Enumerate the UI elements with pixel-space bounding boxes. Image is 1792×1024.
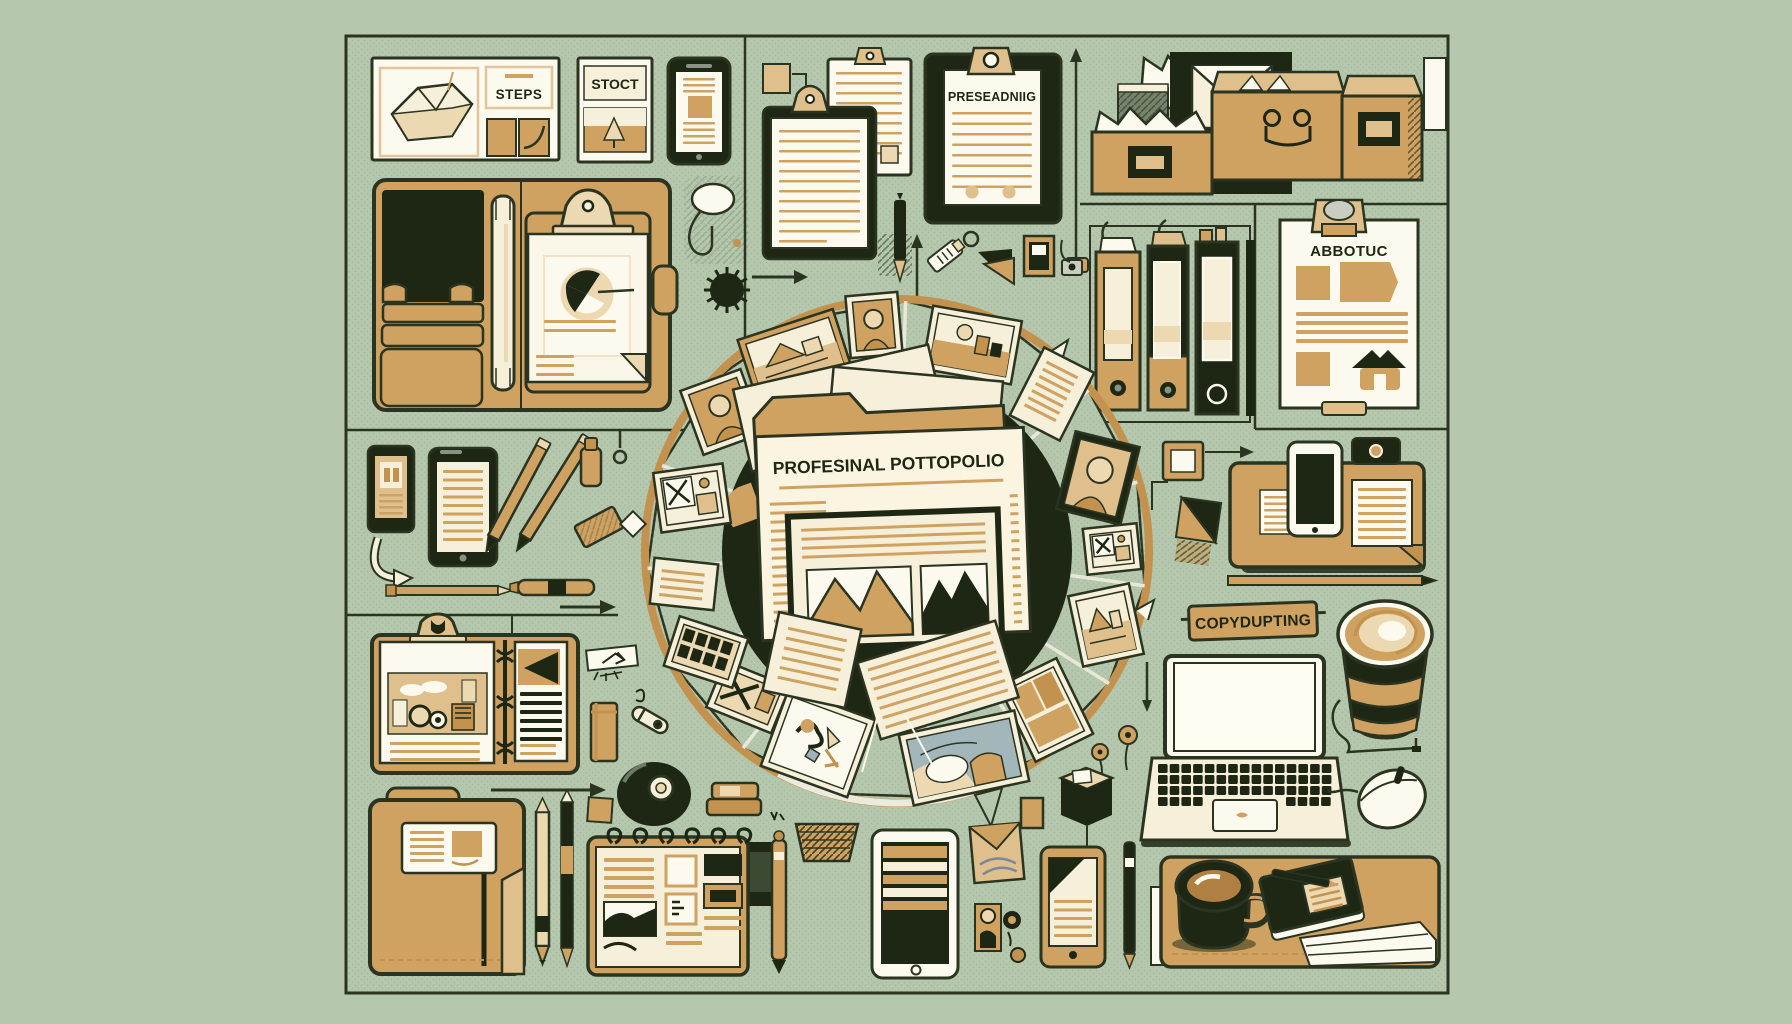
- svg-text:STOCT: STOCT: [591, 76, 639, 92]
- svg-text:ABBOTUC: ABBOTUC: [1310, 243, 1388, 260]
- svg-text:STEPS: STEPS: [496, 87, 543, 102]
- svg-text:PRESEADNIIG: PRESEADNIIG: [948, 90, 1036, 104]
